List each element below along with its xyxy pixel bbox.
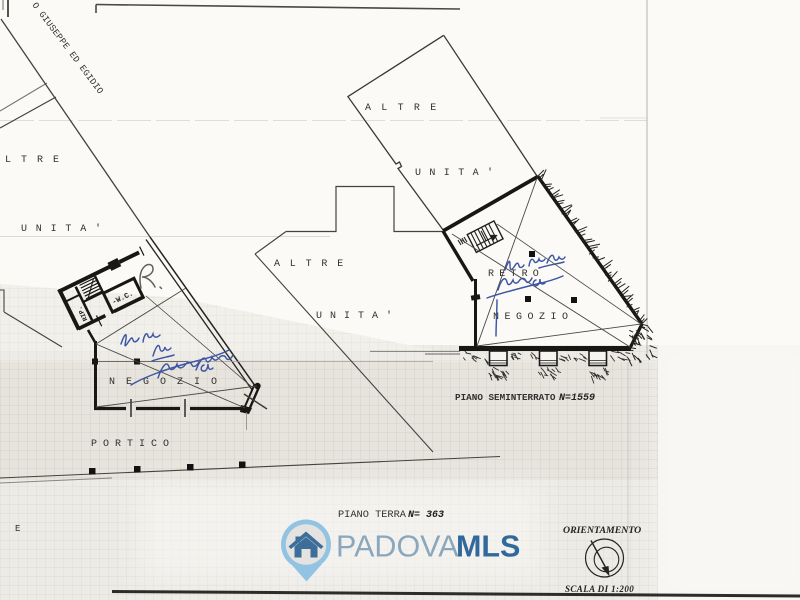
- svg-text:ALTRE: ALTRE: [365, 103, 447, 114]
- svg-text:RETRO: RETRO: [488, 269, 544, 280]
- svg-text:MLS: MLS: [456, 530, 520, 564]
- svg-text:N= 363: N= 363: [408, 510, 444, 521]
- svg-text:PORTICO: PORTICO: [91, 439, 175, 450]
- svg-text:E: E: [15, 524, 20, 534]
- svg-text:PIANO SEMINTERRATO: PIANO SEMINTERRATO: [455, 392, 556, 403]
- svg-text:NEGOZIO: NEGOZIO: [493, 312, 574, 323]
- svg-text:SCALA DI 1:200: SCALA DI 1:200: [565, 584, 634, 594]
- svg-text:N=1559: N=1559: [559, 393, 595, 404]
- svg-text:NEGOZIO: NEGOZIO: [109, 377, 228, 388]
- svg-text:PIANO TERRA: PIANO TERRA: [338, 509, 407, 521]
- svg-text:ALTRE: ALTRE: [274, 259, 353, 270]
- svg-text:UNITA': UNITA': [316, 310, 400, 322]
- svg-text:UNITA': UNITA': [21, 223, 110, 235]
- svg-text:ORIENTAMENTO: ORIENTAMENTO: [563, 525, 641, 536]
- svg-text:UNITA': UNITA': [415, 167, 501, 179]
- svg-text:PADOVA: PADOVA: [336, 530, 459, 564]
- svg-text:LTRE: LTRE: [5, 155, 69, 166]
